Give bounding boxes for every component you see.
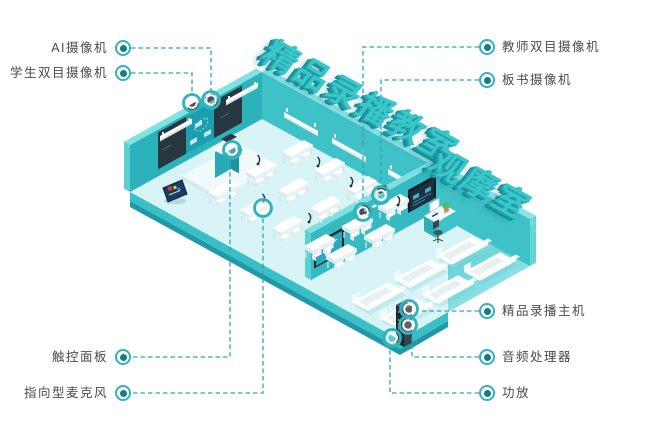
student-camera-marker-ring [184,95,201,112]
bullet-dot [484,77,491,84]
recording-classroom-diagram: 精品录播教室 观摩室 AI摄像机 学生双目摄像机 触控面板 指向型麦克风 教师双… [0,0,660,422]
callout-directional-mic: 指向型麦克风 [24,385,131,401]
board-camera-marker-ring [373,187,390,204]
bullet-marker-icon [479,303,495,319]
callout-label: 音频处理器 [502,349,572,365]
bullet-dot [484,390,491,397]
callout-audio-processor: 音频处理器 [479,349,572,365]
bullet-marker-icon [479,72,495,88]
callout-board-camera: 板书摄像机 [479,72,572,88]
bullet-dot [120,390,127,397]
bullet-marker-icon [479,39,495,55]
bullet-dot [120,45,127,52]
touch-panel-marker-ring [224,142,241,159]
callout-ai-camera: AI摄像机 [51,40,131,56]
callout-label: 功放 [502,385,530,401]
bullet-marker-icon [479,349,495,365]
callout-label: 触控面板 [52,349,108,365]
callout-amplifier: 功放 [479,385,530,401]
bullet-marker-icon [115,349,131,365]
callout-label: 学生双目摄像机 [10,65,108,81]
bullet-dot [484,44,491,51]
audio-processor-marker-ring [400,317,417,334]
callout-student-camera: 学生双目摄像机 [10,65,131,81]
callout-touch-panel: 触控面板 [52,349,131,365]
callout-recording-host: 精品录播主机 [479,303,586,319]
callout-label: AI摄像机 [51,40,108,56]
bullet-dot [484,308,491,315]
bullet-marker-icon [479,385,495,401]
bullet-marker-icon [115,40,131,56]
callout-teacher-camera: 教师双目摄像机 [479,39,600,55]
recording-host-marker-ring [401,301,418,318]
ai-camera-marker-ring [203,92,220,109]
bullet-marker-icon [115,65,131,81]
directional-mic-marker-ring [255,200,272,217]
bullet-dot [120,70,127,77]
leader-amplifier [390,349,479,393]
callout-label: 教师双目摄像机 [502,39,600,55]
leader-ai-camera [131,48,211,91]
callout-label: 精品录播主机 [502,303,586,319]
bullet-marker-icon [115,385,131,401]
leader-student-camera [131,73,192,94]
callout-label: 板书摄像机 [502,72,572,88]
bullet-dot [120,354,127,361]
teacher-camera-marker-ring [355,204,372,221]
callout-label: 指向型麦克风 [24,385,108,401]
amplifier-marker-ring [384,330,401,347]
bullet-dot [484,354,491,361]
